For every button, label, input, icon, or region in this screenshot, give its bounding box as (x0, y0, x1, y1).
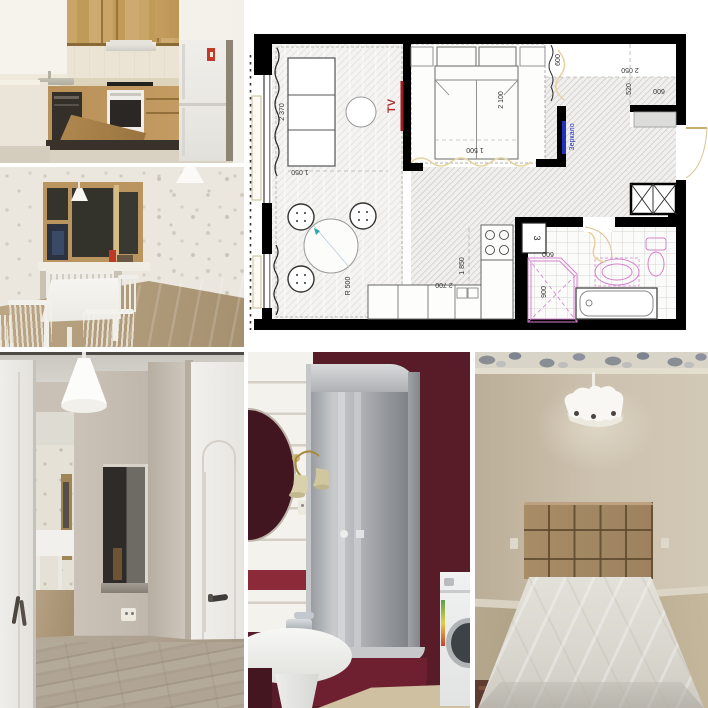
svg-text:1 500: 1 500 (466, 146, 484, 153)
svg-text:Зеркало: Зеркало (569, 123, 576, 150)
svg-text:600: 600 (542, 250, 554, 257)
svg-text:600: 600 (555, 54, 562, 66)
svg-text:1 050: 1 050 (291, 168, 309, 175)
svg-text:900: 900 (541, 286, 548, 298)
svg-text:R 500: R 500 (345, 277, 352, 296)
svg-text:2 100: 2 100 (498, 91, 505, 109)
svg-text:TV: TV (386, 98, 398, 113)
svg-text:1 850: 1 850 (459, 257, 466, 275)
svg-text:520: 520 (626, 83, 633, 95)
svg-text:600: 600 (653, 87, 665, 94)
svg-text:3: 3 (532, 235, 542, 240)
svg-text:2 700: 2 700 (435, 281, 453, 288)
svg-text:2 370: 2 370 (279, 103, 286, 121)
